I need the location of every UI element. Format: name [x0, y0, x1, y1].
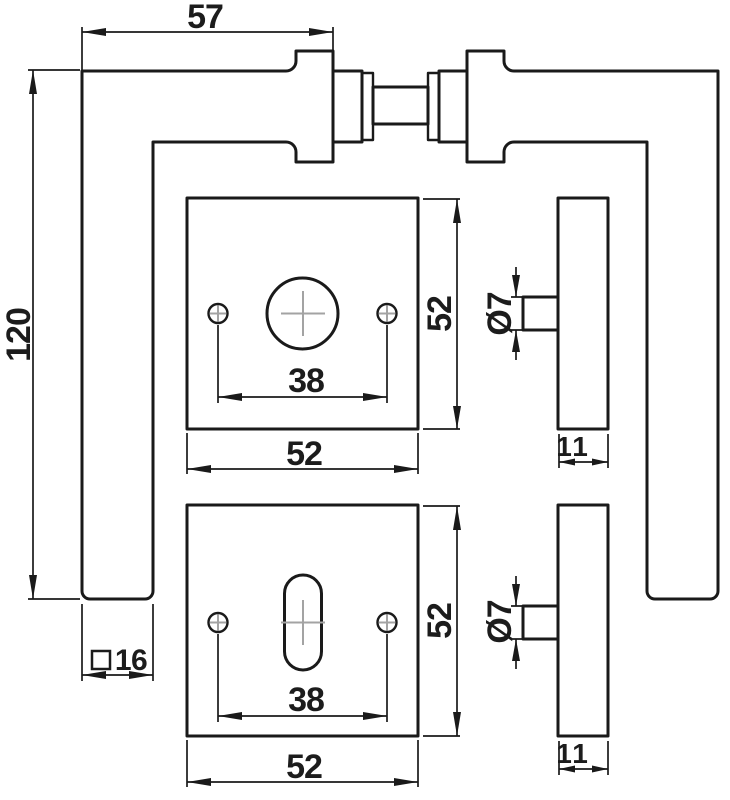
dimension-rosette-top-height-52: 52: [421, 199, 461, 429]
dimension-height-120: 120: [0, 70, 80, 599]
arrowhead-left: [187, 465, 211, 473]
fixing-pin: [523, 297, 558, 330]
top-view-handle-pair: [82, 51, 718, 599]
collar-right: [428, 73, 439, 140]
arrowhead-left: [82, 28, 106, 36]
arrowhead-bottom: [29, 575, 37, 599]
dim-label-57: 57: [187, 0, 223, 36]
center-cross: [281, 291, 325, 336]
arrowhead-left: [187, 778, 211, 786]
dimension-side-bottom-thickness-11: 11: [556, 738, 608, 775]
center-cross: [281, 600, 325, 645]
rosette-side-profile: [558, 505, 608, 736]
arrowhead-right: [394, 778, 418, 786]
dim-label-38: 38: [288, 681, 324, 719]
dimension-side-top-thickness-11: 11: [556, 431, 608, 468]
arrowhead-right: [592, 459, 608, 466]
dim-label-diameter-7: Ø7: [481, 292, 519, 335]
neck-right: [439, 71, 467, 142]
dimension-side-bottom-pin-diameter: Ø7: [481, 576, 523, 669]
dim-label-16: 16: [115, 644, 147, 677]
arrowhead-left: [82, 671, 106, 679]
dim-label-diameter-7: Ø7: [481, 600, 519, 643]
dimension-rosette-top-hole-spacing-38: 38: [218, 325, 387, 403]
arrowhead-top: [29, 70, 37, 94]
dim-label-52-vertical: 52: [421, 296, 459, 332]
spindle: [373, 87, 428, 124]
square-section-symbol: [92, 651, 110, 669]
arrowhead-left: [218, 712, 242, 720]
dim-label-52-horizontal: 52: [286, 435, 322, 473]
side-view-top: [523, 198, 608, 429]
dimension-rosette-bottom-height-52: 52: [421, 506, 461, 736]
arrowhead-right: [592, 766, 608, 773]
rosette-side-profile: [558, 198, 608, 429]
dim-label-38: 38: [288, 362, 324, 400]
screw-cross-right: [379, 306, 395, 322]
arrowhead-top: [453, 199, 461, 223]
dimension-grip-section-16: 16: [82, 604, 153, 681]
spindle-assembly: [333, 71, 467, 142]
arrowhead-bottom: [453, 712, 461, 736]
door-handle-drawing: 57 120 16 38 52: [0, 0, 730, 800]
arrowhead-right: [363, 393, 387, 401]
dim-label-11: 11: [556, 738, 590, 769]
dimension-rosette-bottom-width-52: 52: [187, 740, 418, 787]
technical-drawing-page: 57 120 16 38 52: [0, 0, 730, 800]
arrowhead-top: [453, 506, 461, 530]
fixing-pin: [523, 606, 558, 639]
screw-cross-left: [210, 306, 226, 322]
screw-cross-right: [379, 615, 395, 631]
arrowhead-left: [218, 393, 242, 401]
dim-label-52-horizontal: 52: [286, 748, 322, 786]
dim-label-52-vertical: 52: [421, 603, 459, 639]
arrowhead-right: [309, 28, 333, 36]
dimension-rosette-top-width-52: 52: [187, 433, 418, 474]
side-view-bottom: [523, 505, 608, 736]
neck-left: [333, 71, 362, 142]
dimension-rosette-bottom-hole-spacing-38: 38: [218, 634, 387, 722]
screw-cross-left: [210, 615, 226, 631]
arrowhead-right: [394, 465, 418, 473]
left-lever-outline: [82, 51, 333, 599]
dimension-side-top-pin-diameter: Ø7: [481, 267, 523, 360]
collar-left: [362, 73, 373, 140]
arrowhead-right: [363, 712, 387, 720]
arrowhead-bottom: [453, 406, 461, 429]
dim-label-120: 120: [0, 308, 38, 362]
dim-label-11: 11: [556, 431, 590, 462]
